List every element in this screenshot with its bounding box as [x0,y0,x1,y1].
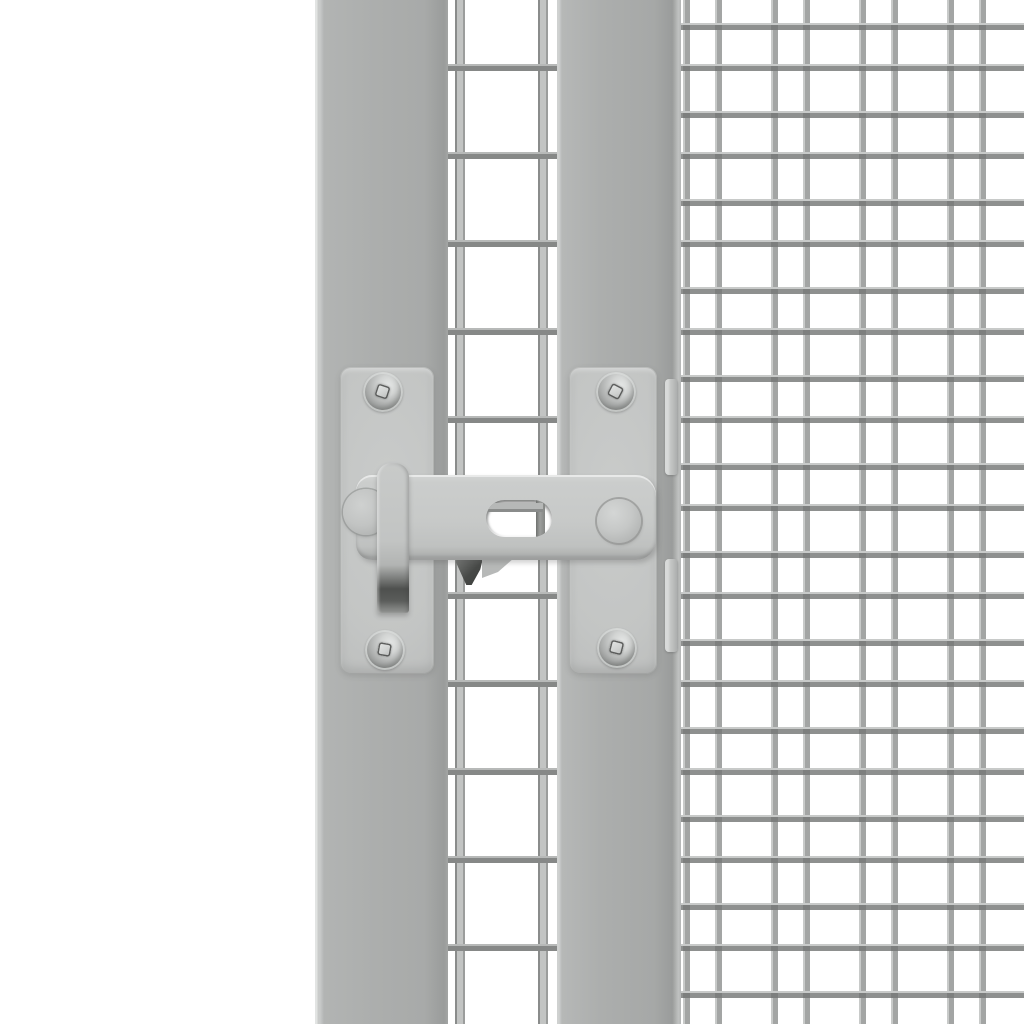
screw-drive-icon [377,642,392,657]
catch-tab-top [665,379,678,475]
screw-bottom-left [365,630,405,670]
screw-bottom-right [597,628,637,668]
latch-guide-knob [597,499,641,543]
catch-tab-bottom [665,559,678,652]
latch-arm-slot [486,500,552,537]
latch-handle-grip [377,463,409,613]
screw-drive-icon [374,383,390,399]
mesh-panel-right [681,0,1024,1024]
gate-latch-photo [0,0,1024,1024]
screw-drive-icon [607,383,625,401]
screw-top-right [596,372,636,412]
screw-top-left [363,372,403,412]
screw-drive-icon [609,640,625,656]
mesh-panel-wires [681,0,1024,1024]
wire-through-slot-horizontal [488,503,543,512]
